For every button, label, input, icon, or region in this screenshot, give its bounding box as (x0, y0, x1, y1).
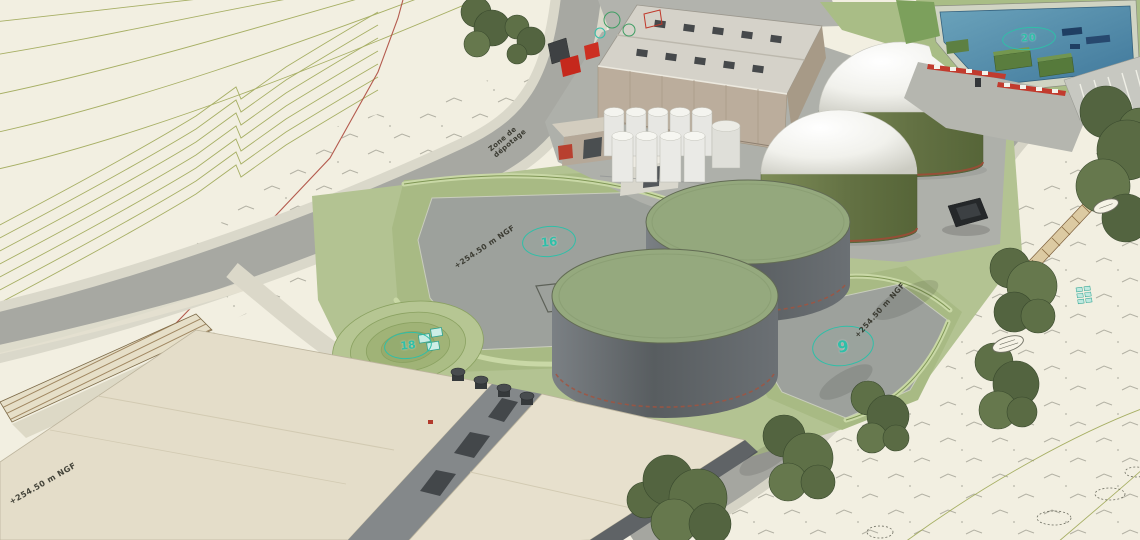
site-rendering-canvas (0, 0, 1140, 540)
red-equipment-unit (558, 144, 573, 160)
marker-tank-yard-number: 9 (836, 336, 850, 356)
marker-platform-number: 16 (540, 234, 558, 249)
marker-pond-number: 20 (1021, 32, 1038, 44)
marker-mound-number: 18 (400, 338, 417, 353)
biogas-plant-3d-site-rendering: 20 16 18 9 +254.50 m NGF +254.50 m NGF +… (0, 0, 1140, 540)
